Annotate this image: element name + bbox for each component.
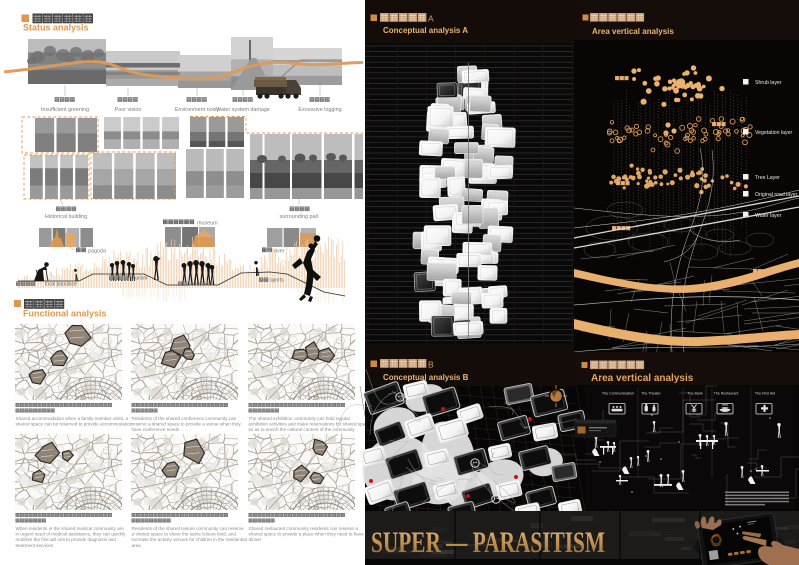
svg-text:have conference needs: have conference needs xyxy=(132,427,180,432)
svg-text:sports: sports xyxy=(270,278,284,284)
svg-text:local populace: local populace xyxy=(45,282,77,288)
svg-text:increase the activity venues f: increase the activity venues for childre… xyxy=(132,537,247,542)
svg-text:Tree Layer: Tree Layer xyxy=(755,175,780,181)
svg-text:exhibition activities and make: exhibition activities and make reservati… xyxy=(249,422,372,427)
svg-text:A: A xyxy=(428,14,434,24)
svg-text:shared space to provide a plac: shared space to provide a place when the… xyxy=(249,532,365,537)
svg-text:SUPER — PARASITISM: SUPER — PARASITISM xyxy=(371,526,605,559)
svg-text:treatment services: treatment services xyxy=(16,543,54,548)
svg-text:Shrub layer: Shrub layer xyxy=(755,80,782,86)
svg-text:When residents in the shared m: When residents in the shared medical com… xyxy=(16,526,125,531)
svg-text:The Theater: The Theater xyxy=(641,392,661,396)
svg-text:B: B xyxy=(428,360,434,370)
svg-text:Vegetation layer: Vegetation layer xyxy=(755,130,792,136)
svg-text:so as to enrich the cultural c: so as to enrich the cultural content of … xyxy=(249,427,356,432)
svg-text:Insufficient greening: Insufficient greening xyxy=(41,107,89,113)
svg-text:The Restaurant: The Restaurant xyxy=(714,392,739,396)
svg-text:reserve a shared space to prov: reserve a shared space to provide a venu… xyxy=(132,422,242,427)
svg-text:Functional analysis: Functional analysis xyxy=(23,309,107,319)
svg-text:Historical building: Historical building xyxy=(45,214,87,220)
svg-text:in urgent need of medical assi: in urgent need of medical assistance, th… xyxy=(16,532,127,537)
svg-text:tourism: tourism xyxy=(131,276,147,282)
svg-text:shared space can be reserved t: shared space can be reserved to provide … xyxy=(16,422,133,427)
svg-text:Status analysis: Status analysis xyxy=(23,23,89,33)
svg-text:Shared accommodation when: Shared accommodation when a family membe… xyxy=(16,416,129,421)
svg-text:Poor vision: Poor vision xyxy=(115,107,142,113)
svg-text:Area vertical analysis: Area vertical analysis xyxy=(591,373,694,384)
svg-text:museum: museum xyxy=(197,221,218,227)
svg-text:Water layer: Water layer xyxy=(755,213,782,219)
svg-text:Conceptual analysis A: Conceptual analysis A xyxy=(383,26,468,35)
svg-text:The First Aid: The First Aid xyxy=(755,392,775,396)
svg-text:Residents of the shared confer: Residents of the shared conference commu… xyxy=(132,416,237,421)
svg-text:a shared space to share the sa: a shared space to share the same leisure… xyxy=(132,532,237,537)
svg-text:surrounding parl: surrounding parl xyxy=(280,214,319,220)
svg-text:Area vertical analysis: Area vertical analysis xyxy=(592,27,674,36)
svg-text:Excessive logging: Excessive logging xyxy=(298,107,341,113)
svg-text:Water system damage: Water system damage xyxy=(216,107,270,113)
svg-text:area: area xyxy=(132,543,142,548)
svg-text:The shared exhibition commu: The shared exhibition community can hold… xyxy=(249,416,351,421)
svg-text:The Bank: The Bank xyxy=(687,392,703,396)
svg-text:Environment noisy: Environment noisy xyxy=(175,107,220,113)
svg-text:mobilize the first aid unit to: mobilize the first aid unit to provide d… xyxy=(16,537,117,542)
svg-text:Shared restaurant community: Shared restaurant community residents ca… xyxy=(249,526,359,531)
svg-text:scheduled: scheduled xyxy=(190,282,213,288)
svg-text:Residents of the shared leisur: Residents of the shared leisure communit… xyxy=(132,526,245,531)
svg-text:The Communication: The Communication xyxy=(602,392,634,396)
svg-text:pagoda: pagoda xyxy=(88,249,106,255)
svg-text:dinner: dinner xyxy=(249,537,262,542)
